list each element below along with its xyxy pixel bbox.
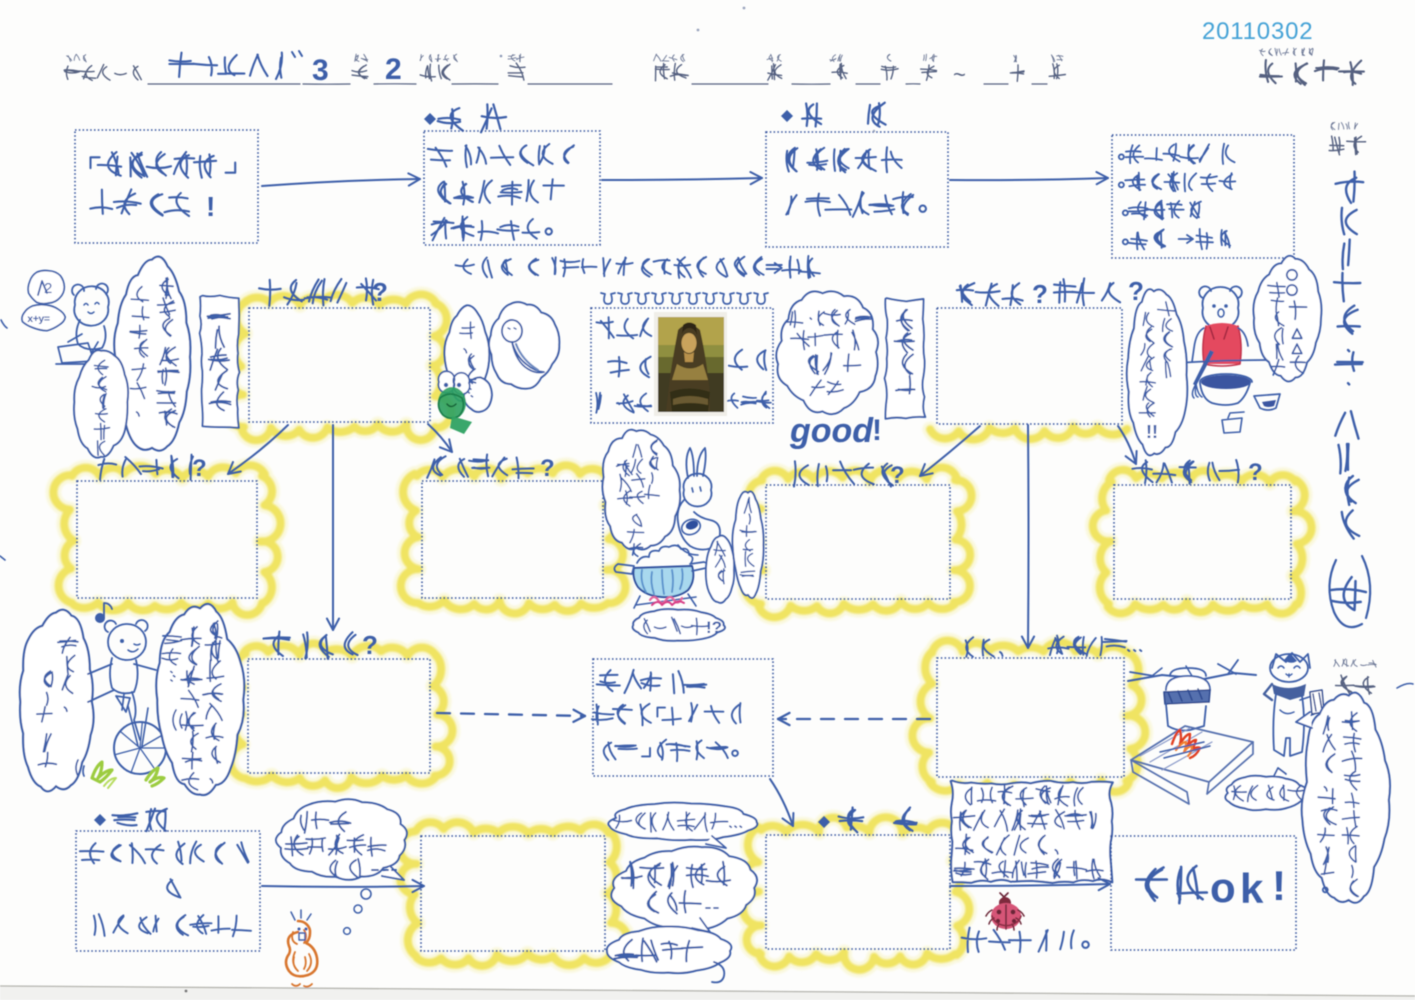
svg-text:!: !	[1272, 862, 1286, 909]
svg-text:!?: !?	[706, 618, 722, 637]
svg-text:3: 3	[312, 54, 329, 87]
svg-text:~: ~	[953, 62, 966, 87]
svg-text:o: o	[1210, 864, 1236, 911]
svg-text:k: k	[1240, 865, 1264, 912]
svg-text:2: 2	[44, 280, 52, 297]
svg-text:?: ?	[1032, 279, 1048, 309]
svg-text:?: ?	[192, 455, 207, 482]
svg-text:?: ?	[1248, 459, 1263, 486]
svg-text:!: !	[206, 191, 215, 222]
svg-text:!: !	[872, 414, 882, 447]
svg-text:20110302: 20110302	[1202, 18, 1313, 45]
svg-text:2: 2	[385, 53, 402, 86]
svg-text:good: good	[789, 412, 874, 450]
svg-text:=: =	[44, 313, 50, 325]
svg-text:!!: !!	[1146, 422, 1158, 442]
svg-text:?: ?	[362, 630, 378, 660]
svg-text:?: ?	[540, 455, 555, 482]
svg-text:?: ?	[372, 277, 388, 307]
